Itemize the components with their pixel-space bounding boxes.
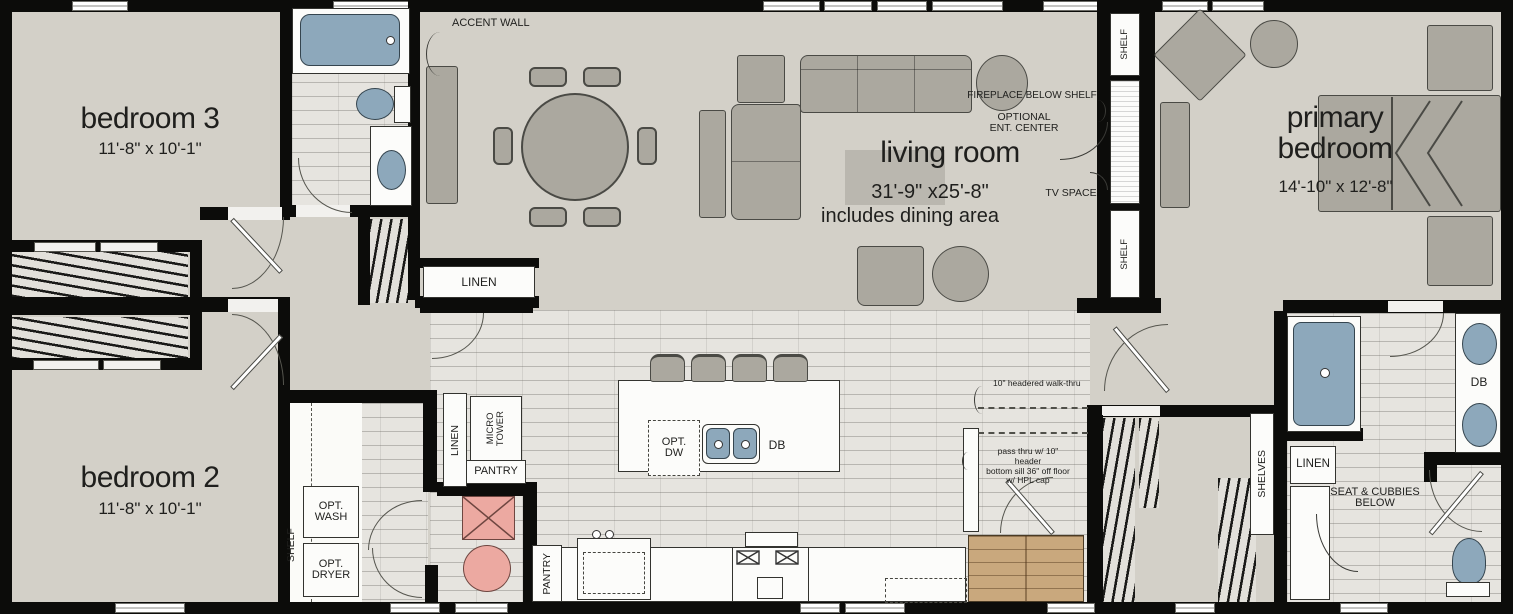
sink-cabinet-inner — [583, 552, 645, 594]
corner-chair — [1153, 8, 1246, 101]
pantry-label: PANTRY — [542, 553, 553, 595]
room-dims-primary: 14'-10" x 12'-8" — [1248, 178, 1423, 196]
pass-thru-opening — [963, 428, 979, 532]
pantry-closet: PANTRY — [466, 460, 526, 484]
room-label-primary: primary bedroom — [1240, 102, 1430, 164]
db-label: DB — [1462, 376, 1496, 388]
shelf-builtin: SHELF — [1110, 210, 1140, 298]
leader-line — [1090, 100, 1106, 122]
toilet-tank — [394, 86, 411, 123]
optional-dryer: OPT. DRYER — [303, 543, 359, 597]
linen-label: LINEN — [461, 276, 496, 288]
room-label-bedroom3: bedroom 3 — [40, 103, 260, 134]
closet-rod-hatch — [370, 219, 408, 303]
bar-stool — [773, 354, 808, 382]
fireplace-builtin — [1110, 80, 1140, 204]
wall — [0, 602, 1513, 614]
wall — [420, 300, 533, 313]
seat-cubbies-label: SEAT & CUBBIES BELOW — [1315, 487, 1435, 510]
shelves-unit: SHELVES — [1250, 413, 1274, 535]
wall — [425, 565, 438, 602]
closet-rod-hatch — [1103, 418, 1135, 602]
linen-label: LINEN — [450, 425, 461, 456]
wall — [1087, 415, 1103, 602]
accent-wall-label: ACCENT WALL — [452, 18, 562, 29]
leader-line — [962, 452, 974, 470]
window — [800, 603, 840, 613]
sofa — [800, 55, 972, 113]
burner-icons — [736, 550, 806, 566]
shelf-label: SHELF — [1120, 239, 1130, 270]
bar-stool — [732, 354, 767, 382]
door-opening — [228, 299, 282, 312]
room-note-living: includes dining area — [795, 206, 1025, 227]
leader-line — [426, 32, 454, 76]
window — [390, 603, 440, 613]
window — [1175, 603, 1215, 613]
window — [455, 603, 508, 613]
wall — [1077, 298, 1161, 313]
leader-line — [974, 386, 990, 414]
sliding-door — [33, 360, 99, 370]
shelves-label: SHELVES — [1257, 450, 1268, 498]
window — [877, 1, 927, 11]
fireplace-label: FIREPLACE BELOW SHELF — [963, 91, 1101, 101]
toilet-icon — [1452, 538, 1486, 584]
range-hood — [745, 532, 798, 547]
round-chair — [976, 55, 1028, 111]
db-label: DB — [764, 439, 790, 451]
oven-door — [757, 577, 783, 599]
wall — [423, 390, 437, 492]
wall — [280, 0, 292, 217]
faucet-icon — [605, 530, 614, 539]
door-opening — [1102, 406, 1160, 416]
linen-cabinet: LINEN — [443, 393, 467, 487]
sink-icon — [1462, 323, 1497, 365]
armchair — [857, 246, 924, 306]
window — [824, 1, 872, 11]
room-label-living: living room — [815, 137, 1085, 168]
optional-washer: OPT. WASH — [303, 486, 359, 538]
buffet — [426, 66, 458, 204]
wall — [358, 217, 370, 305]
linen-closet: LINEN — [423, 266, 535, 298]
room-dims-bedroom3: 11'-8" x 10'-1" — [40, 140, 260, 158]
toilet-tank — [1446, 582, 1490, 597]
toilet-icon — [356, 88, 394, 120]
shelf-label: SHELF — [286, 505, 302, 585]
micro-tower-cabinet: MICRO TOWER — [470, 396, 522, 462]
optional-dishwasher: OPT. DW — [648, 420, 700, 476]
drain-icon — [741, 440, 750, 449]
door-arc — [232, 314, 284, 385]
linen-label: LINEN — [1296, 459, 1330, 471]
wall — [1501, 0, 1513, 614]
sink-icon — [1462, 403, 1497, 447]
room-dims-bedroom2: 11'-8" x 10'-1" — [40, 500, 260, 518]
armchair — [737, 55, 785, 103]
bathtub-basin — [300, 14, 400, 66]
window — [932, 1, 1003, 11]
linen-cabinet: LINEN — [1290, 446, 1336, 484]
opt-dryer-label: OPT. DRYER — [312, 559, 350, 582]
console-table — [699, 110, 726, 218]
window — [1340, 603, 1388, 613]
shower-x-icon — [462, 496, 515, 540]
dresser — [1160, 102, 1190, 208]
bar-stool — [691, 354, 726, 382]
tub-faucet-icon — [386, 36, 395, 45]
window — [845, 603, 905, 613]
window — [72, 1, 128, 11]
header-dashed-line — [978, 432, 1088, 434]
entry-steps — [1047, 603, 1095, 613]
walk-thru-label: 10" headered walk-thru — [993, 379, 1095, 389]
nightstand — [1427, 216, 1493, 286]
wall — [285, 390, 435, 403]
drain-icon — [1320, 368, 1330, 378]
door-opening — [1388, 301, 1443, 312]
shelf-label: SHELF — [1120, 29, 1130, 60]
micro-tower-label: MICRO TOWER — [486, 411, 506, 446]
shelf-builtin: SHELF — [1110, 13, 1140, 76]
opt-wash-label: OPT. WASH — [315, 501, 348, 524]
entry-wood-floor — [968, 535, 1084, 602]
sliding-door — [34, 242, 96, 252]
optional-cabinet — [885, 578, 967, 603]
room-label-bedroom2: bedroom 2 — [40, 462, 260, 493]
closet-rod-hatch — [12, 252, 188, 297]
header-dashed-line — [978, 407, 1088, 409]
window — [1212, 1, 1264, 11]
wall — [0, 0, 1513, 12]
window — [1043, 1, 1098, 11]
dining-table — [492, 66, 658, 228]
faucet-icon — [592, 530, 601, 539]
water-heater — [463, 545, 511, 592]
pass-thru-label: pass thru w/ 10" header bottom sill 36" … — [984, 447, 1072, 486]
sliding-door — [103, 360, 161, 370]
pantry-cabinet: PANTRY — [532, 545, 562, 602]
optional-ent-label: OPTIONAL ENT. CENTER — [978, 112, 1070, 134]
wall — [1274, 311, 1287, 602]
window — [763, 1, 820, 11]
drain-icon — [714, 440, 723, 449]
ottoman — [932, 246, 989, 302]
window — [115, 603, 185, 613]
nightstand — [1427, 25, 1493, 91]
wall — [0, 358, 202, 370]
sink-icon — [377, 150, 406, 190]
pantry-label: PANTRY — [474, 466, 518, 477]
wall — [0, 297, 202, 315]
bar-stool — [650, 354, 685, 382]
room-dims-living: 31'-9" x25'-8" — [840, 182, 1020, 203]
closet-rod-hatch — [1139, 418, 1159, 508]
opt-dw-label: OPT. DW — [662, 437, 686, 460]
sliding-door — [100, 242, 158, 252]
floor-plan: LINEN SHELF SHELF SHELVES — [0, 0, 1513, 614]
closet-rod-hatch — [12, 317, 188, 359]
round-side-table — [1250, 20, 1298, 68]
loveseat — [731, 104, 801, 220]
